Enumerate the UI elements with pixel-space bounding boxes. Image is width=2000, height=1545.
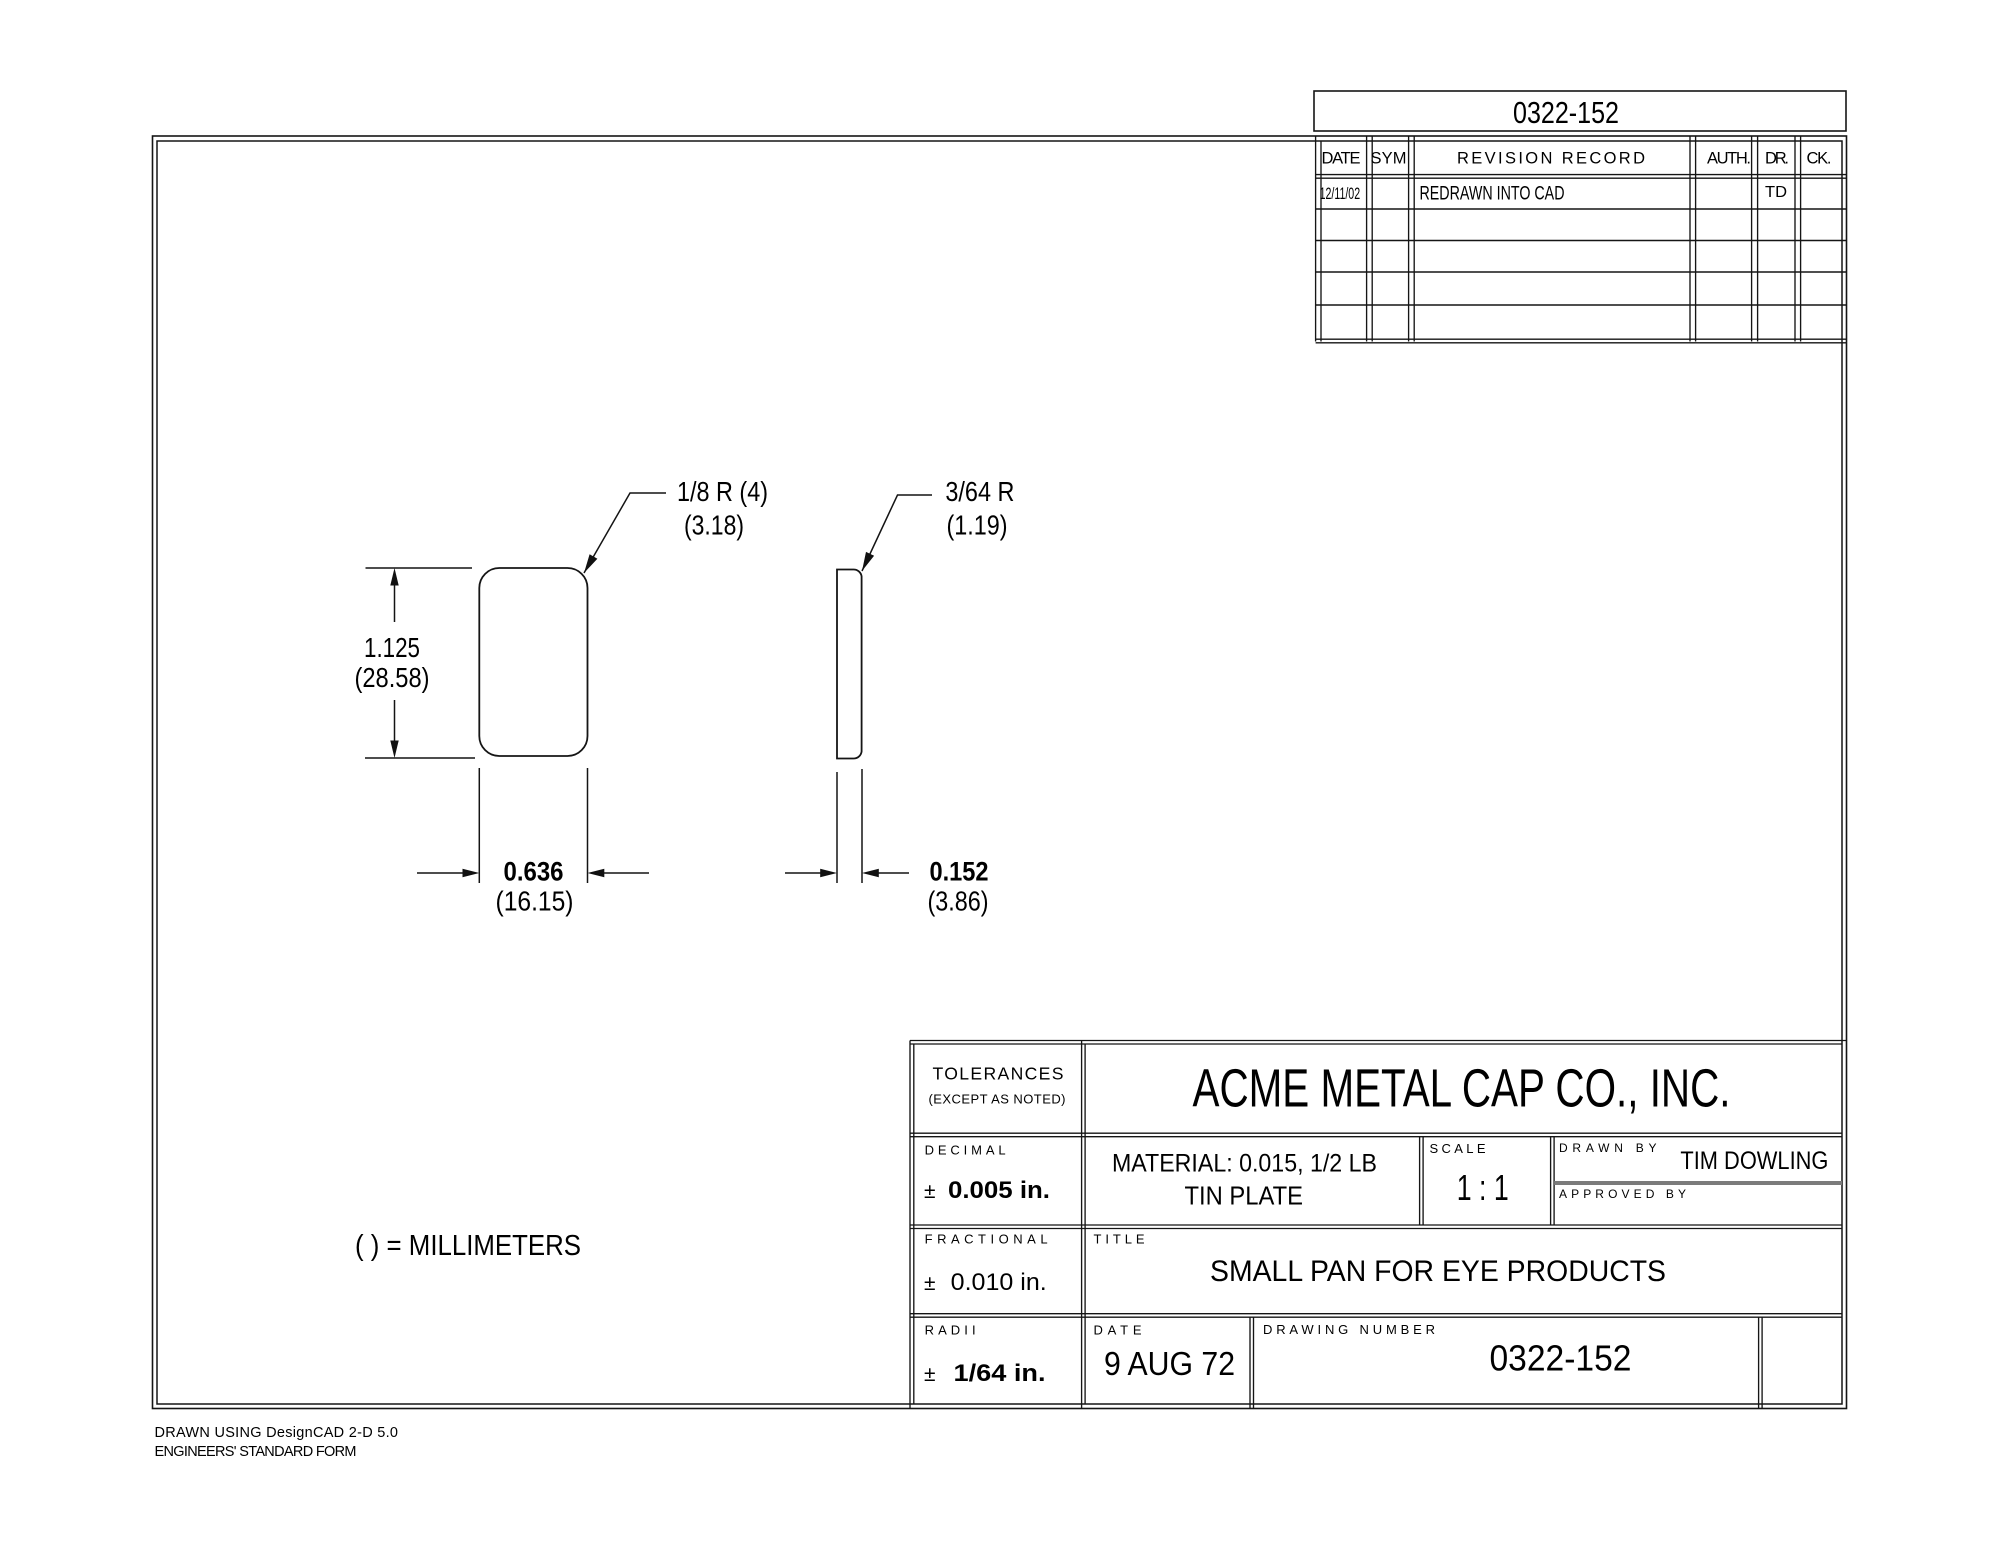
svg-text:SMALL PAN FOR EYE PRODUCTS: SMALL PAN FOR EYE PRODUCTS bbox=[1210, 1255, 1666, 1288]
svg-text:3/64 R: 3/64 R bbox=[945, 476, 1014, 507]
svg-text:DRAWN USING DesignCAD 2-D 5.0: DRAWN USING DesignCAD 2-D 5.0 bbox=[155, 1425, 399, 1441]
svg-text:1/8 R (4): 1/8 R (4) bbox=[677, 476, 768, 507]
svg-text:0322-152: 0322-152 bbox=[1490, 1338, 1632, 1379]
svg-text:0.005 in.: 0.005 in. bbox=[948, 1177, 1050, 1204]
svg-text:CK.: CK. bbox=[1807, 150, 1832, 168]
svg-text:(3.86): (3.86) bbox=[928, 886, 989, 917]
svg-text:1.125: 1.125 bbox=[364, 632, 420, 663]
svg-text:ACME METAL CAP CO., INC.: ACME METAL CAP CO., INC. bbox=[1193, 1059, 1731, 1119]
svg-text:APPROVED BY: APPROVED BY bbox=[1559, 1187, 1686, 1201]
svg-text:ENGINEERS' STANDARD FORM: ENGINEERS' STANDARD FORM bbox=[155, 1444, 357, 1460]
svg-text:±: ± bbox=[924, 1363, 936, 1386]
svg-text:0322-152: 0322-152 bbox=[1513, 95, 1619, 130]
svg-text:1/64 in.: 1/64 in. bbox=[954, 1360, 1046, 1387]
svg-text:0.010 in.: 0.010 in. bbox=[951, 1269, 1047, 1296]
svg-text:0.636: 0.636 bbox=[504, 857, 564, 887]
svg-text:±: ± bbox=[924, 1272, 936, 1295]
svg-text:9 AUG 72: 9 AUG 72 bbox=[1104, 1346, 1235, 1383]
svg-text:(16.15): (16.15) bbox=[496, 886, 574, 917]
svg-text:AUTH.: AUTH. bbox=[1707, 150, 1751, 168]
svg-text:DATE: DATE bbox=[1322, 150, 1361, 168]
svg-text:DR.: DR. bbox=[1765, 150, 1789, 168]
svg-text:TD: TD bbox=[1765, 184, 1787, 201]
svg-text:(EXCEPT AS NOTED): (EXCEPT AS NOTED) bbox=[929, 1092, 1066, 1107]
svg-text:REDRAWN INTO CAD: REDRAWN INTO CAD bbox=[1420, 184, 1565, 205]
svg-text:±: ± bbox=[924, 1180, 936, 1203]
svg-text:SCALE: SCALE bbox=[1430, 1141, 1486, 1156]
svg-text:0.152: 0.152 bbox=[930, 857, 989, 887]
svg-text:TOLERANCES: TOLERANCES bbox=[933, 1063, 1064, 1083]
svg-text:(28.58): (28.58) bbox=[355, 662, 430, 693]
svg-text:12/11/02: 12/11/02 bbox=[1320, 184, 1361, 203]
svg-text:SYM: SYM bbox=[1371, 150, 1407, 168]
svg-text:(1.19): (1.19) bbox=[947, 510, 1008, 541]
svg-text:TIM DOWLING: TIM DOWLING bbox=[1680, 1147, 1828, 1175]
svg-text:(3.18): (3.18) bbox=[684, 510, 744, 541]
svg-text:TIN PLATE: TIN PLATE bbox=[1185, 1183, 1304, 1211]
svg-text:DRAWN BY: DRAWN BY bbox=[1559, 1141, 1657, 1155]
svg-text:TITLE: TITLE bbox=[1094, 1232, 1145, 1247]
svg-text:1 : 1: 1 : 1 bbox=[1457, 1167, 1509, 1208]
svg-text:MATERIAL: 0.015, 1/2 LB: MATERIAL: 0.015, 1/2 LB bbox=[1112, 1150, 1377, 1178]
svg-text:( ) = MILLIMETERS: ( ) = MILLIMETERS bbox=[355, 1230, 581, 1262]
